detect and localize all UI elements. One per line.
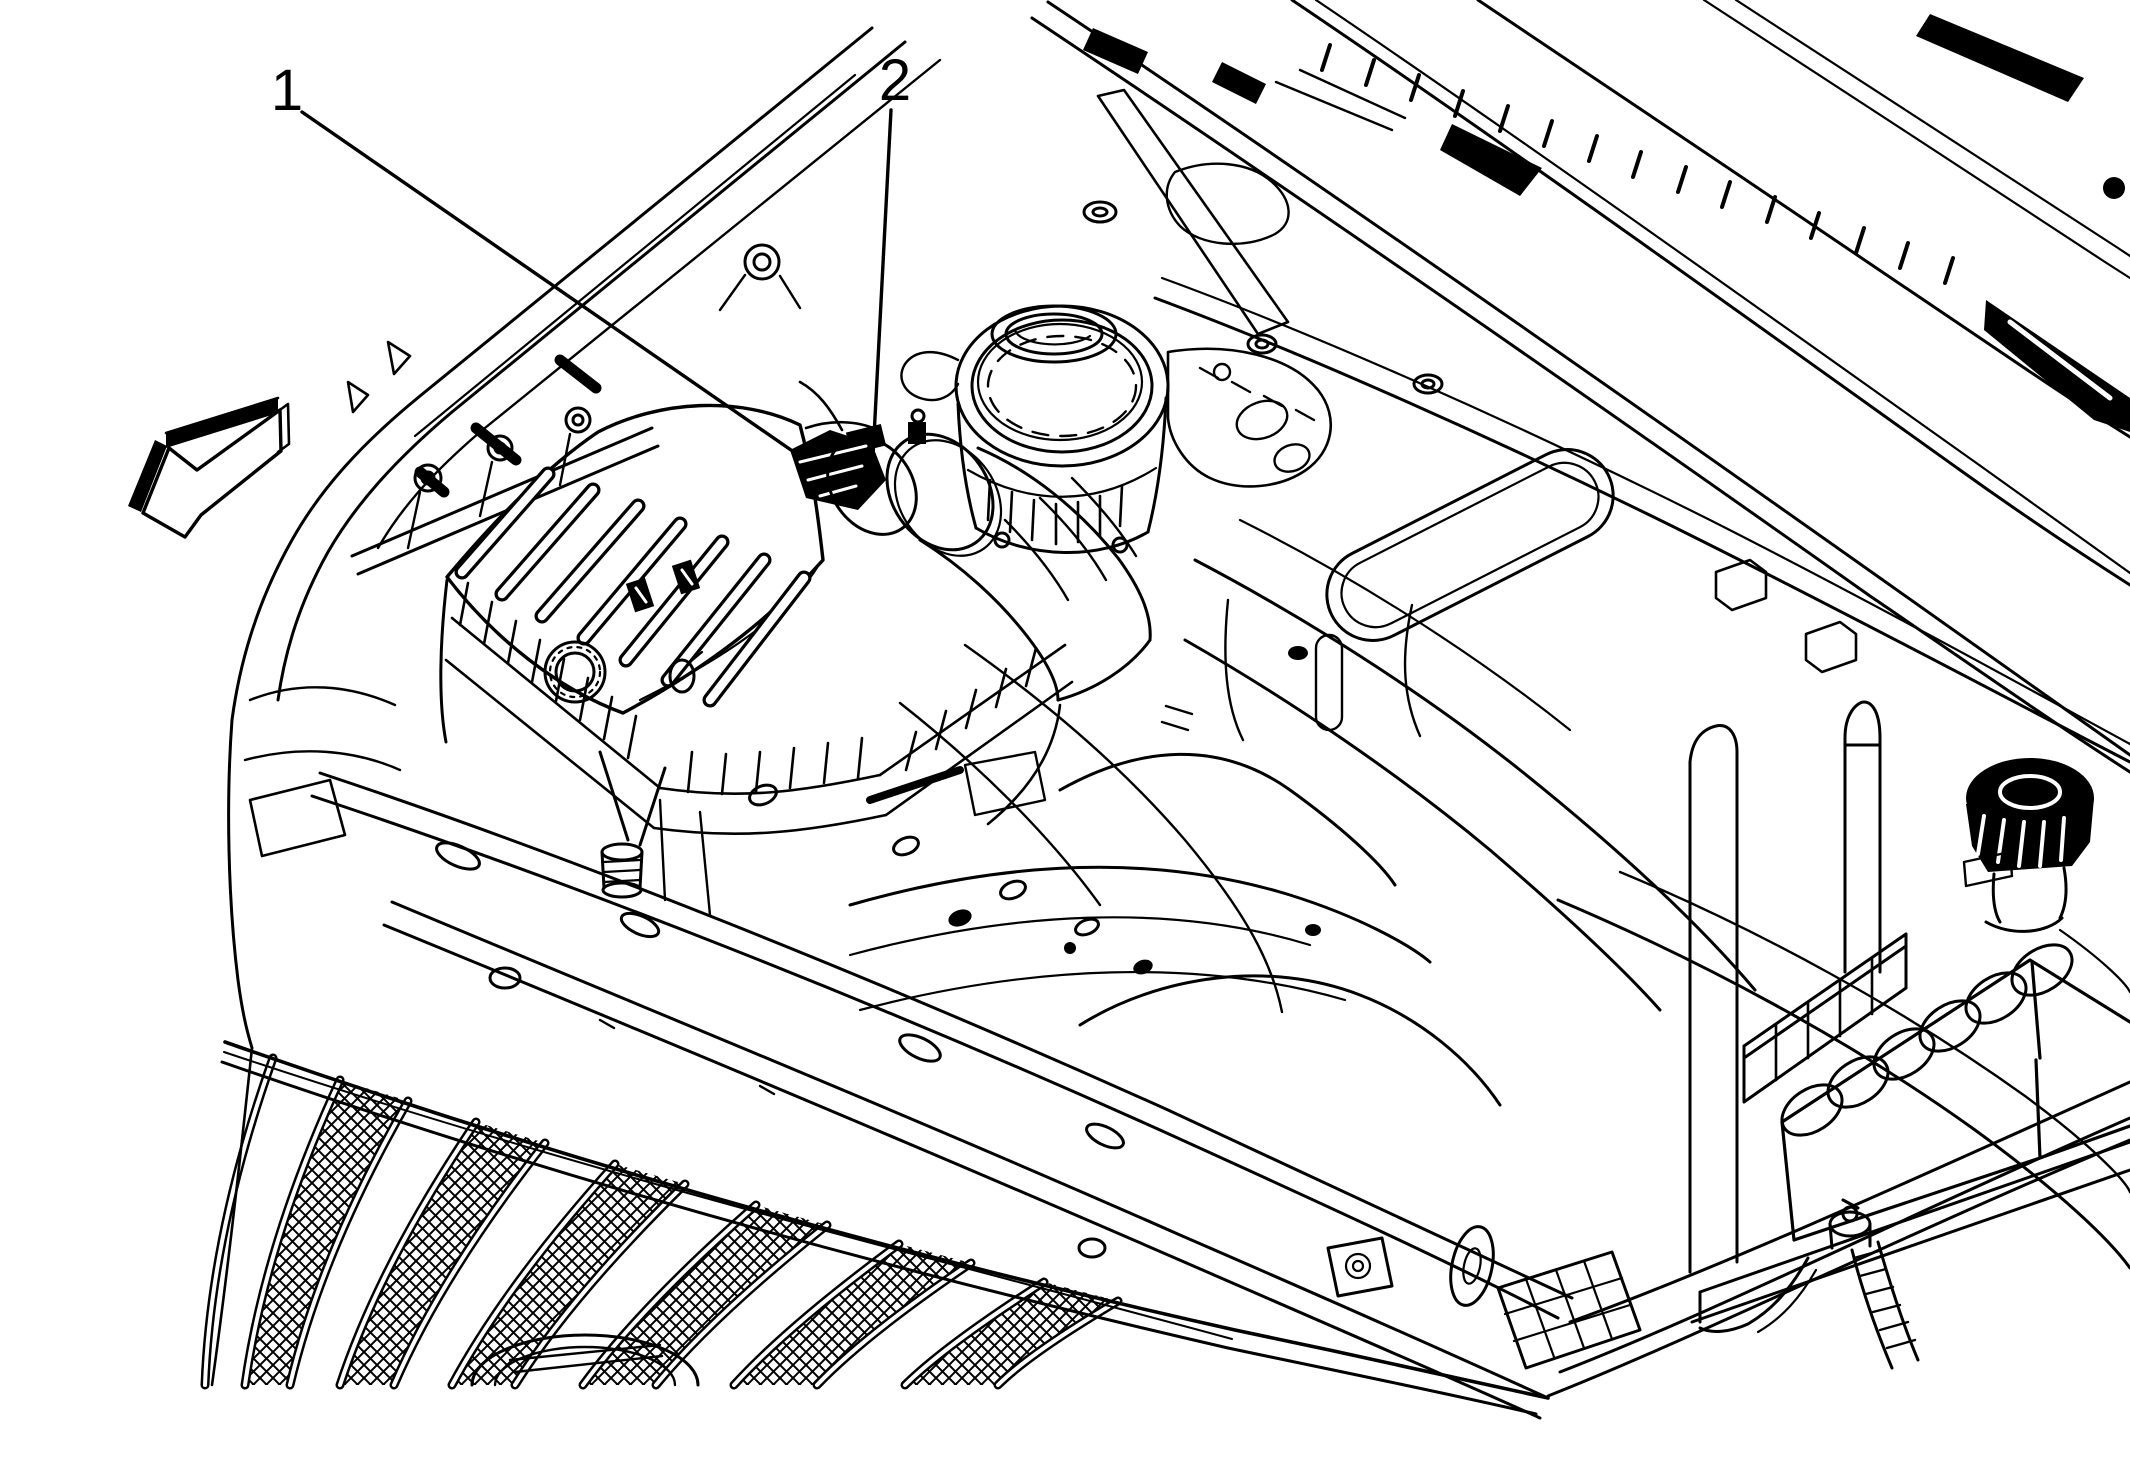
view-direction-arrow-icon [128,398,289,537]
illustration-canvas: 1 2 [0,0,2130,1482]
battery [1773,934,2130,1240]
callout-leaders [302,110,891,456]
radiator-support-beams [312,773,2130,1418]
front-grille [205,1042,1548,1414]
wiper-arm-icon [1984,300,2130,432]
callout-1-label: 1 [271,58,303,123]
strut-tower-panel [747,434,1755,1105]
cowl-clips-and-wiper-arm [1083,14,2130,432]
engine-compartment-drawing: 1 2 [0,0,2130,1482]
callout-1-leader-line [302,112,791,450]
air-cleaner-assembly [441,405,1072,915]
grille-hatch-bands [245,1080,1118,1385]
hood-edge-lines [229,28,940,1048]
pillar [1845,702,1880,972]
reservoir-cap-icon [1966,758,2094,872]
callout-2-label: 2 [879,48,911,113]
battery-and-right-side [1328,560,2130,1368]
cowl-panel-rails [1032,0,2130,772]
callout-2-leader-line [873,110,891,456]
